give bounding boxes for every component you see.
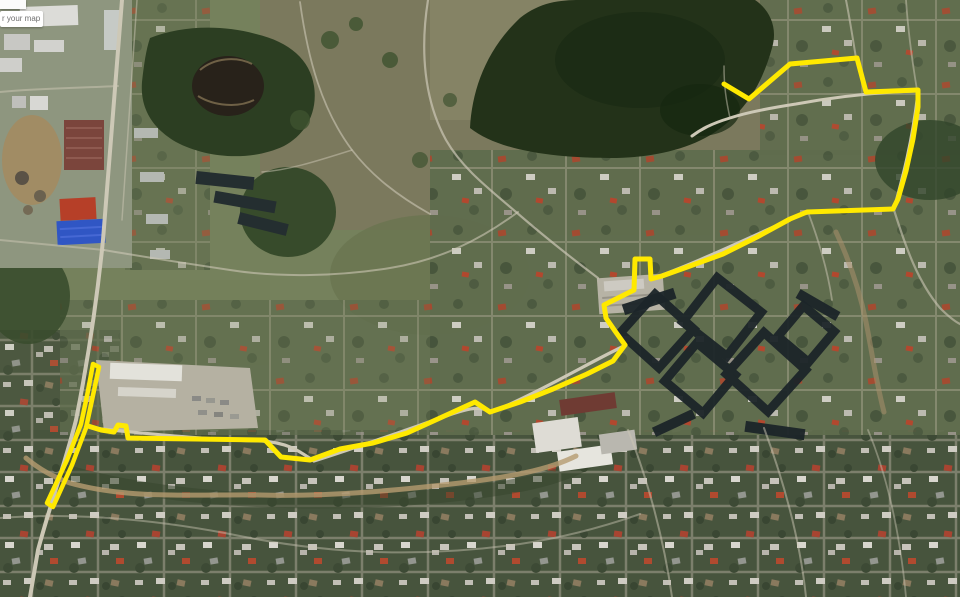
construction-dirt xyxy=(2,115,62,205)
ui-fragment-box xyxy=(0,0,26,9)
map-title-fragment: r your map xyxy=(0,11,43,27)
quarry xyxy=(192,56,264,116)
bus-depot xyxy=(96,360,258,432)
red-roof-building xyxy=(59,197,96,221)
satellite-image xyxy=(0,0,960,597)
map-viewport[interactable]: r your map xyxy=(0,0,960,597)
blue-roof-building xyxy=(56,219,105,245)
